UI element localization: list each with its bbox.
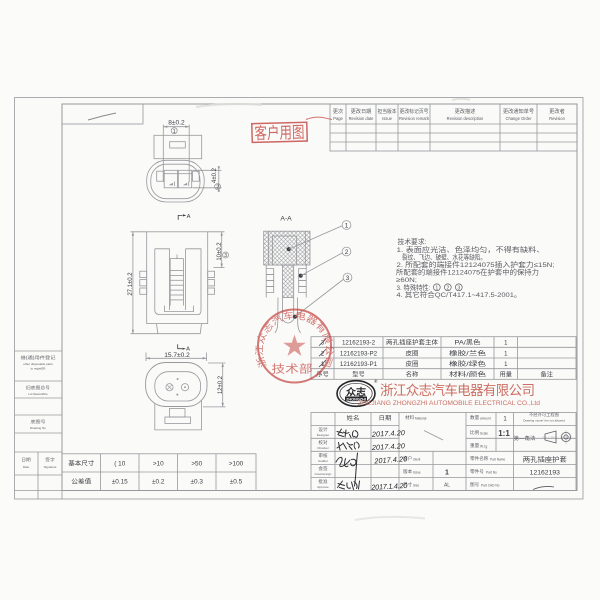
svg-text:Material: Material	[415, 417, 427, 421]
svg-text:Issue: Issue	[413, 471, 421, 475]
svg-text:Revision description: Revision description	[447, 116, 484, 121]
svg-text:A-A: A-A	[280, 216, 292, 223]
svg-text:Checker: Checker	[317, 446, 329, 450]
svg-text:1. 表面应光洁、色泽均匀，不得有缺料、: 1. 表面应光洁、色泽均匀，不得有缺料、	[397, 245, 545, 254]
svg-text:第—角法: 第—角法	[514, 435, 536, 442]
svg-text:12162193-P2: 12162193-P2	[340, 350, 378, 357]
svg-text:Date: Date	[23, 465, 30, 469]
svg-text:更改标记页号: 更改标记页号	[400, 108, 429, 115]
svg-text:担当版本: 担当版本	[378, 108, 397, 115]
svg-text:橡胶/绿色: 橡胶/绿色	[449, 360, 486, 368]
svg-text:Countersign: Countersign	[315, 472, 332, 476]
svg-text:2: 2	[446, 286, 449, 292]
svg-text:3. 特殊特性:: 3. 特殊特性:	[397, 283, 431, 292]
svg-text:±0.2: ±0.2	[152, 479, 165, 486]
svg-text:27.1±0.2: 27.1±0.2	[128, 272, 134, 296]
svg-text:更次: 更次	[333, 108, 343, 115]
svg-text:签字: 签字	[45, 456, 55, 462]
svg-text:Page: Page	[333, 116, 343, 121]
svg-text:ZHEJIANG ZHONGZHI AUTOMOBILE E: ZHEJIANG ZHONGZHI AUTOMOBILE ELECTRICAL …	[358, 400, 540, 407]
svg-text:AL: AL	[444, 483, 450, 489]
svg-text:>100: >100	[229, 460, 244, 467]
svg-text:PA/黑色: PA/黑色	[455, 339, 481, 347]
svg-text:to registER: to registER	[31, 367, 47, 371]
svg-text:Revision: Revision	[549, 116, 565, 121]
svg-text:更改通知单号: 更改通知单号	[503, 108, 534, 115]
svg-text:12±0.2: 12±0.2	[218, 375, 224, 394]
svg-text:Part Name: Part Name	[490, 458, 505, 462]
svg-text:3: 3	[224, 253, 227, 259]
svg-text:±0.3: ±0.3	[191, 479, 204, 486]
svg-text:2: 2	[345, 249, 349, 256]
svg-text:版本: 版本	[403, 468, 413, 475]
svg-text:1: 1	[173, 129, 176, 135]
svg-text:Part No: Part No	[486, 471, 497, 475]
svg-text:A: A	[187, 214, 191, 220]
svg-text:1: 1	[345, 223, 349, 230]
svg-text:材料: 材料	[405, 414, 415, 421]
svg-text:amount: amount	[480, 417, 491, 421]
svg-text:±0.15: ±0.15	[112, 479, 128, 486]
svg-text:校对: 校对	[318, 439, 328, 446]
svg-text:皮圈: 皮圈	[406, 360, 419, 368]
svg-text:Designer: Designer	[317, 433, 329, 437]
svg-text:2. 所配套的端接件12124075插入护套力≤15N;: 2. 所配套的端接件12124075插入护套力≤15N;	[397, 260, 555, 269]
svg-text:8±0.2: 8±0.2	[168, 120, 185, 127]
svg-text:3: 3	[457, 286, 460, 292]
svg-text:1: 1	[445, 470, 449, 477]
svg-text:other disposable parts: other disposable parts	[23, 362, 53, 366]
svg-text:公差值: 公差值	[71, 478, 91, 486]
svg-text:2017.4.20: 2017.4.20	[371, 428, 405, 439]
svg-text:Lot Reworkthe: Lot Reworkthe	[28, 392, 48, 396]
svg-text:Signature: Signature	[44, 465, 57, 469]
svg-text:姓名: 姓名	[347, 414, 360, 422]
svg-text:客户用图: 客户用图	[254, 123, 304, 143]
svg-text:名称: 名称	[406, 371, 419, 379]
svg-text:比例: 比例	[470, 429, 480, 436]
svg-text:型号: 型号	[352, 371, 365, 379]
svg-text:两孔插座护套: 两孔插座护套	[523, 455, 568, 464]
svg-text:基本尺寸: 基本尺寸	[68, 459, 94, 467]
svg-text:Size: Size	[413, 484, 419, 488]
svg-text:client: client	[413, 458, 421, 462]
svg-text:4±0.2: 4±0.2	[212, 167, 218, 183]
svg-text:Change Order: Change Order	[506, 116, 533, 121]
svg-text:更改者: 更改者	[549, 108, 565, 115]
svg-text:零件名称: 零件名称	[470, 455, 489, 462]
svg-text:±0.5: ±0.5	[230, 479, 243, 486]
svg-text:10±0.2: 10±0.2	[217, 242, 223, 261]
svg-text:Part CAD No: Part CAD No	[481, 484, 500, 488]
svg-text:Revision remark: Revision remark	[399, 116, 430, 121]
svg-text:材料/颜色: 材料/颜色	[449, 371, 486, 379]
svg-text:Drawing No: Drawing No	[30, 426, 46, 430]
svg-text:设计: 设计	[318, 426, 328, 433]
svg-text:1:1: 1:1	[498, 429, 510, 438]
svg-text:2017.4.20: 2017.4.20	[371, 441, 405, 452]
svg-text:3: 3	[346, 275, 350, 282]
svg-text:会签: 会签	[318, 465, 328, 472]
svg-text:所配套的端接件12124075在护套中的保持力: 所配套的端接件12124075在护套中的保持力	[396, 268, 539, 277]
svg-text:12162193: 12162193	[530, 470, 560, 477]
svg-text:Issue: Issue	[382, 116, 393, 121]
svg-text:Auditor: Auditor	[318, 459, 328, 463]
svg-text:皮圈: 皮圈	[406, 349, 419, 357]
svg-text:橡胶/兰色: 橡胶/兰色	[449, 349, 486, 357]
svg-text:更改描述: 更改描述	[455, 108, 476, 115]
svg-text:零件号: 零件号	[470, 468, 484, 475]
svg-text:Approve: Approve	[317, 485, 329, 489]
svg-text:A: A	[186, 347, 190, 353]
svg-text:≥60N;: ≥60N;	[396, 277, 417, 284]
svg-text:日期: 日期	[379, 415, 392, 422]
svg-text:1: 1	[435, 286, 438, 292]
svg-text:>10: >10	[153, 460, 164, 467]
svg-text:Scale: Scale	[480, 432, 488, 436]
svg-text:2017.1.4.20: 2017.1.4.20	[370, 481, 407, 492]
svg-text:借(通)用件登记: 借(通)用件登记	[21, 354, 57, 361]
svg-text:Revision date: Revision date	[349, 116, 375, 121]
svg-text:Drawing mustn't be not allowed: Drawing mustn't be not allowed	[523, 419, 565, 423]
svg-text:数量: 数量	[470, 414, 480, 421]
svg-text:技术要求:: 技术要求:	[398, 237, 427, 246]
svg-text:备注: 备注	[541, 371, 554, 379]
svg-text:审核: 审核	[318, 452, 328, 459]
svg-text:技术部: 技术部	[272, 362, 313, 376]
svg-text:裂纹、飞边、破壁、水花等缺陷。: 裂纹、飞边、破壁、水花等缺陷。	[402, 252, 486, 261]
svg-text:2: 2	[216, 185, 219, 191]
svg-text:旧底图总号: 旧底图总号	[26, 384, 50, 391]
svg-text:两孔插座护套主体: 两孔插座护套主体	[386, 339, 438, 347]
svg-text:重量: 重量	[470, 442, 480, 449]
svg-text:用量: 用量	[500, 372, 513, 379]
svg-text:12162193-P1: 12162193-P1	[340, 361, 378, 368]
svg-text:更改日期: 更改日期	[351, 108, 372, 115]
svg-text:W.t.g: W.t.g	[480, 445, 487, 449]
svg-text:底图号: 底图号	[31, 418, 46, 425]
svg-text:浙江众志汽车电器有限公司: 浙江众志汽车电器有限公司	[380, 382, 535, 398]
svg-text:>50: >50	[191, 460, 202, 467]
svg-text:批准: 批准	[318, 478, 328, 485]
svg-text:15.7±0.2: 15.7±0.2	[164, 352, 190, 359]
svg-text:12162193-2: 12162193-2	[342, 340, 376, 347]
svg-text:不经许可工程图: 不经许可工程图	[529, 411, 559, 418]
svg-text:( 10: ( 10	[114, 460, 125, 467]
